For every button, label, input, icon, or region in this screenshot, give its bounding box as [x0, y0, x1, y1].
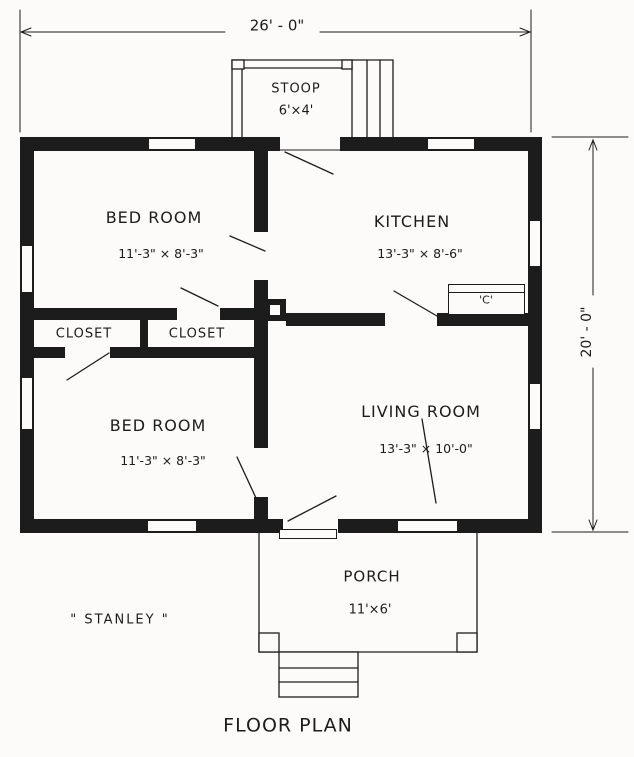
porch-size: 11'×6': [349, 604, 392, 617]
living-room-size: 13'-3" × 10'-0": [379, 443, 473, 456]
overall-depth-dimension: 20' - 0": [580, 307, 594, 358]
stoop-post-right: [342, 60, 352, 69]
living-room-leader-line: [422, 419, 436, 503]
kitchen-door-swing: [394, 291, 437, 316]
porch-post-right: [457, 633, 477, 652]
porch-door-swing: [288, 496, 336, 521]
stoop-size: 6'×4': [279, 105, 314, 118]
porch-label: PORCH: [343, 570, 400, 585]
porch-steps: [279, 652, 358, 697]
closet-left-door-swing: [67, 353, 109, 380]
overall-width-dimension: 26' - 0": [250, 19, 305, 34]
stoop-label: STOOP: [271, 83, 321, 96]
plan-name: " STANLEY ": [70, 614, 169, 627]
closet-left-label: CLOSET: [56, 328, 113, 341]
porch-post-left: [259, 633, 279, 652]
stoop-steps: [367, 60, 393, 137]
kitchen-size: 13'-3" × 8'-6": [377, 248, 463, 261]
bedroom-bottom-door-swing: [237, 457, 256, 498]
porch-outline: [259, 533, 477, 652]
drawing-title: FLOOR PLAN: [223, 717, 353, 736]
bedroom-bottom-label: BED ROOM: [110, 418, 207, 434]
rear-door-swing: [285, 152, 333, 174]
bedroom-top-door-swing: [230, 236, 265, 251]
stoop-outline: [232, 60, 393, 137]
kitchen-label: KITCHEN: [374, 214, 450, 230]
stoop-post-left: [232, 60, 244, 69]
bedroom-top-label: BED ROOM: [106, 210, 203, 226]
living-room-label: LIVING ROOM: [361, 404, 481, 420]
floor-plan-drawing: 26' - 0" 20' - 0" STOOP 6'×4' BED ROOM 1…: [0, 0, 634, 757]
closet-right-door-swing: [181, 288, 218, 306]
bedroom-bottom-size: 11'-3" × 8'-3": [120, 455, 206, 468]
closet-right-label: CLOSET: [169, 328, 226, 341]
cabinet-label: 'C': [479, 295, 493, 306]
bedroom-top-size: 11'-3" × 8'-3": [118, 248, 204, 261]
linework-layer: [0, 0, 634, 757]
